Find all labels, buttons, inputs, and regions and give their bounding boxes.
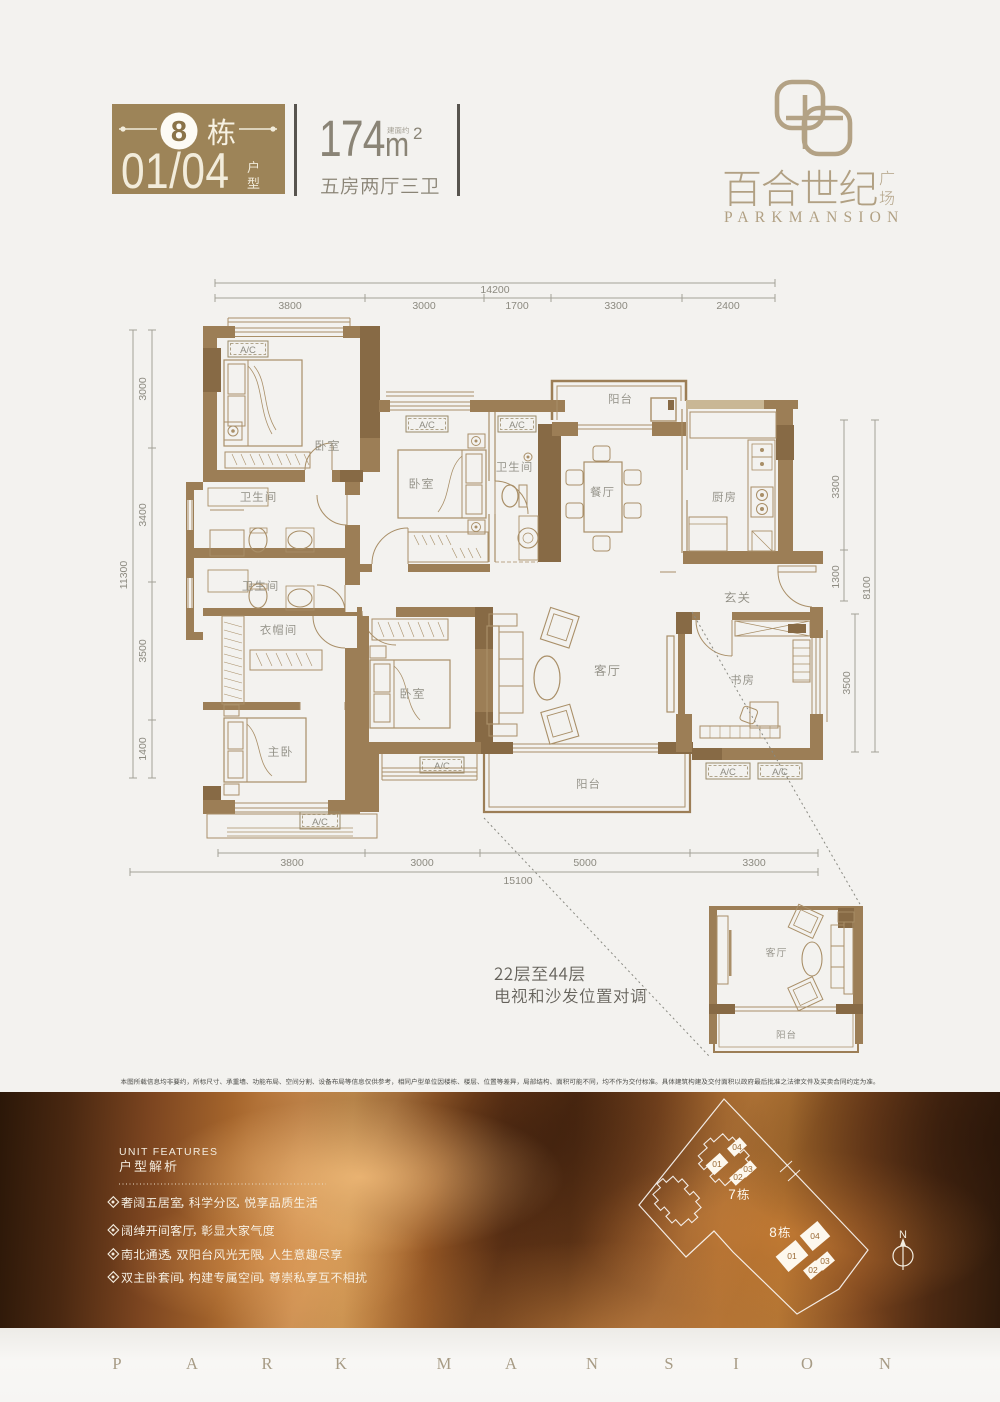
svg-text:A/C: A/C (720, 767, 736, 778)
svg-text:5000: 5000 (573, 857, 597, 869)
svg-text:3500: 3500 (841, 671, 853, 695)
svg-text:04: 04 (810, 1231, 820, 1241)
svg-text:S: S (664, 1354, 673, 1373)
svg-text:3800: 3800 (280, 857, 304, 869)
svg-text:03: 03 (743, 1164, 753, 1174)
svg-text:15100: 15100 (503, 875, 532, 887)
svg-text:3000: 3000 (410, 857, 434, 869)
svg-text:N: N (879, 1354, 891, 1373)
svg-text:1400: 1400 (137, 737, 149, 761)
svg-text:02: 02 (808, 1265, 818, 1275)
svg-text:O: O (801, 1354, 813, 1373)
svg-text:R: R (261, 1354, 272, 1373)
svg-text:N: N (586, 1354, 598, 1373)
svg-text:14200: 14200 (480, 284, 509, 296)
svg-text:8100: 8100 (861, 576, 873, 600)
svg-text:2: 2 (413, 124, 422, 143)
svg-text:2400: 2400 (716, 300, 740, 312)
svg-text:A/C: A/C (509, 420, 525, 431)
svg-text:01: 01 (712, 1159, 722, 1169)
svg-text:A: A (505, 1354, 517, 1373)
svg-text:A: A (186, 1354, 198, 1373)
svg-text:1300: 1300 (830, 565, 842, 589)
svg-text:UNIT FEATURES: UNIT FEATURES (119, 1146, 218, 1158)
svg-text:3800: 3800 (278, 300, 302, 312)
svg-text:3400: 3400 (137, 503, 149, 527)
svg-text:3300: 3300 (742, 857, 766, 869)
svg-text:A/C: A/C (434, 761, 450, 772)
svg-text:A/C: A/C (419, 420, 435, 431)
svg-text:3300: 3300 (604, 300, 628, 312)
svg-text:11300: 11300 (118, 561, 130, 590)
svg-text:3000: 3000 (412, 300, 436, 312)
svg-text:A/C: A/C (312, 817, 328, 828)
svg-text:P: P (112, 1354, 121, 1373)
svg-text:3300: 3300 (830, 475, 842, 499)
svg-text:1700: 1700 (505, 300, 529, 312)
svg-text:A/C: A/C (240, 345, 256, 356)
svg-text:03: 03 (820, 1256, 830, 1266)
svg-text:3000: 3000 (137, 377, 149, 401)
svg-text:01: 01 (787, 1251, 797, 1261)
svg-text:02: 02 (733, 1172, 743, 1182)
svg-text:01/04: 01/04 (121, 143, 229, 199)
svg-text:M: M (437, 1354, 452, 1373)
svg-text:PARKMANSION: PARKMANSION (724, 209, 904, 226)
svg-text:7: 7 (728, 1187, 736, 1202)
svg-text:04: 04 (732, 1142, 742, 1152)
svg-text:I: I (733, 1354, 739, 1373)
svg-text:A/C: A/C (772, 767, 788, 778)
svg-text:8: 8 (769, 1225, 777, 1240)
svg-text:174: 174 (319, 110, 385, 167)
svg-text:K: K (335, 1354, 347, 1373)
svg-text:N: N (899, 1229, 907, 1241)
svg-text:3500: 3500 (137, 639, 149, 663)
